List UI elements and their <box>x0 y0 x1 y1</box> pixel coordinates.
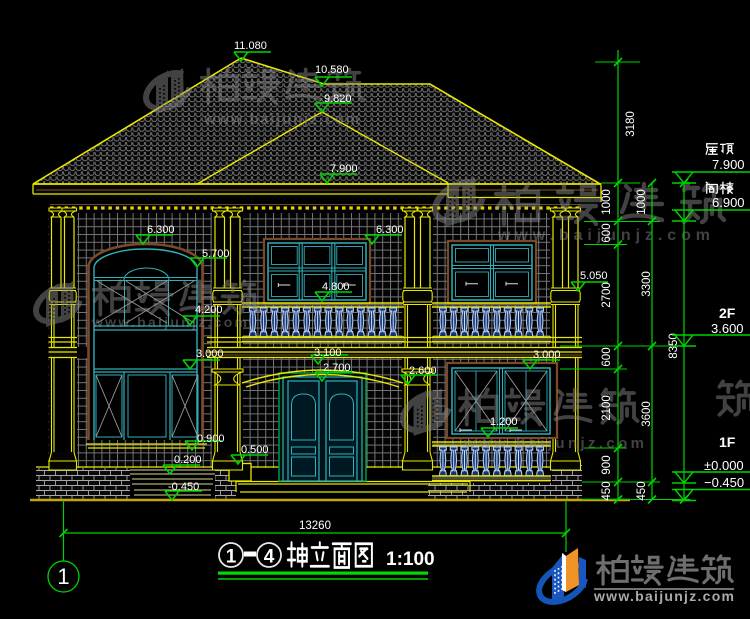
svg-text:±0.000: ±0.000 <box>704 458 744 473</box>
svg-text:3300: 3300 <box>641 271 653 297</box>
svg-text:0.500: 0.500 <box>241 444 269 456</box>
svg-text:4.200: 4.200 <box>195 304 223 316</box>
svg-text:2100: 2100 <box>601 395 613 421</box>
svg-text:3.000: 3.000 <box>533 349 561 361</box>
svg-text:6.300: 6.300 <box>147 224 175 236</box>
svg-text:1: 1 <box>57 564 69 589</box>
svg-text:-0.450: -0.450 <box>168 481 199 493</box>
svg-text:5.050: 5.050 <box>580 270 608 282</box>
svg-text:6.900: 6.900 <box>712 195 745 210</box>
svg-text:900: 900 <box>601 455 613 474</box>
svg-text:1F: 1F <box>719 434 736 450</box>
svg-text:0.200: 0.200 <box>174 454 202 466</box>
svg-text:1:100: 1:100 <box>386 549 435 570</box>
svg-text:6.300: 6.300 <box>376 224 404 236</box>
svg-text:3600: 3600 <box>641 401 653 427</box>
svg-text:10.580: 10.580 <box>315 64 349 76</box>
svg-text:7.900: 7.900 <box>330 163 358 175</box>
svg-text:450: 450 <box>601 481 613 500</box>
svg-text:7.900: 7.900 <box>712 157 745 172</box>
svg-text:1.200: 1.200 <box>490 416 518 428</box>
svg-text:2700: 2700 <box>601 282 613 308</box>
svg-text:1: 1 <box>226 547 237 568</box>
svg-text:3.600: 3.600 <box>711 321 744 336</box>
svg-text:4: 4 <box>264 547 275 568</box>
svg-text:3.100: 3.100 <box>314 347 342 359</box>
svg-text:2.700: 2.700 <box>323 362 351 374</box>
svg-text:13260: 13260 <box>299 520 331 532</box>
svg-text:4.800: 4.800 <box>322 281 350 293</box>
svg-text:0.900: 0.900 <box>197 433 225 445</box>
svg-text:2.600: 2.600 <box>409 365 437 377</box>
svg-text:600: 600 <box>601 347 613 366</box>
svg-text:3.000: 3.000 <box>196 348 224 360</box>
svg-text:www.baijunjz.com: www.baijunjz.com <box>593 588 734 604</box>
svg-text:−0.450: −0.450 <box>704 475 744 490</box>
svg-text:600: 600 <box>601 223 613 242</box>
svg-text:11.080: 11.080 <box>234 40 267 52</box>
svg-text:5.700: 5.700 <box>202 248 230 260</box>
svg-text:1000: 1000 <box>636 189 648 215</box>
svg-text:1000: 1000 <box>601 189 613 215</box>
svg-text:9.820: 9.820 <box>324 93 352 105</box>
svg-text:450: 450 <box>636 481 648 500</box>
svg-text:2F: 2F <box>719 305 736 321</box>
svg-text:3180: 3180 <box>625 111 637 137</box>
